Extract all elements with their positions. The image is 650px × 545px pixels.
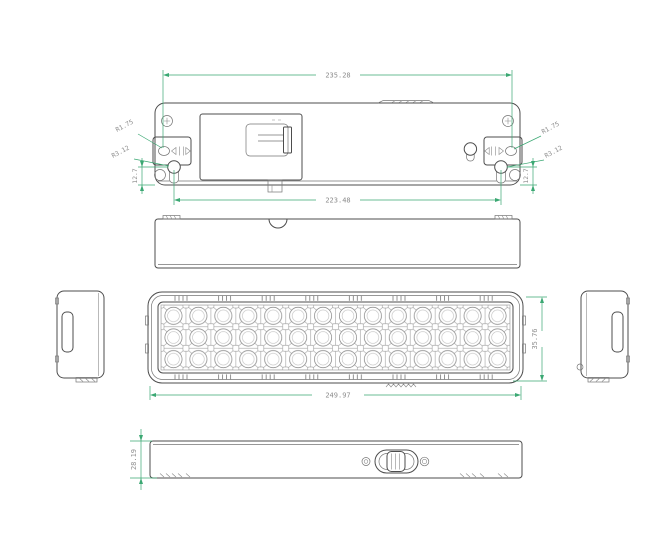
dim-label-right-keyhole-radius: R3.12 bbox=[544, 145, 564, 160]
bottom-outline bbox=[150, 441, 522, 478]
test-button bbox=[420, 457, 429, 466]
hanging-keyhole bbox=[464, 143, 476, 161]
left-end-cap-view bbox=[56, 291, 105, 382]
dim-label-right-keyhole-offset: 12.7 bbox=[523, 168, 530, 183]
right-mounting-fittings bbox=[484, 116, 522, 184]
end-cap-outline bbox=[57, 291, 104, 378]
left-mounting-fittings bbox=[153, 116, 191, 184]
dim-label-bottom-height: 28.19 bbox=[130, 449, 138, 470]
dim-label-front-width: 249.97 bbox=[325, 392, 350, 400]
dim-label-back-overall-width: 235.28 bbox=[325, 72, 350, 80]
bottom-view: 28.19 bbox=[130, 429, 522, 490]
cable-notch bbox=[269, 219, 287, 228]
dim-label-back-mounting-span: 223.48 bbox=[325, 197, 350, 205]
lens-grid bbox=[161, 305, 510, 370]
back-housing-outline bbox=[155, 103, 520, 185]
dim-label-left-keyhole-radius: R3.12 bbox=[111, 145, 131, 160]
dim-front-height: 35.76 bbox=[513, 297, 547, 381]
bracket-slot bbox=[62, 312, 73, 352]
back-view: 235.28 223.48 R1.75 R3.12 R1.75 R3.12 bbox=[111, 70, 564, 205]
dim-back-overall-width: 235.28 bbox=[163, 70, 512, 148]
foot-hatch-left bbox=[160, 474, 190, 478]
cable-tab bbox=[268, 180, 282, 192]
front-view: 249.97 35.76 bbox=[146, 292, 548, 400]
right-end-cap-view bbox=[581, 291, 630, 382]
bottom-edge-serration bbox=[386, 384, 416, 387]
dim-label-left-keyhole-offset: 12.7 bbox=[132, 168, 139, 183]
dim-back-mounting-span: 223.48 bbox=[174, 170, 501, 205]
technical-drawing-canvas: 235.28 223.48 R1.75 R3.12 R1.75 R3.12 bbox=[0, 0, 650, 545]
dim-label-left-slot-radius: R1.75 bbox=[115, 119, 135, 134]
dim-left-keyhole-offset: 12.7 bbox=[132, 158, 168, 194]
dim-label-right-slot-radius: R1.75 bbox=[541, 121, 561, 136]
power-switch bbox=[362, 450, 429, 473]
switch-slider bbox=[387, 452, 405, 472]
dim-label-front-height: 35.76 bbox=[531, 328, 539, 349]
side-elevation-view bbox=[155, 216, 520, 269]
corner-hole bbox=[155, 170, 166, 181]
vent-slots-bottom bbox=[172, 374, 500, 379]
dim-front-width: 249.97 bbox=[150, 386, 521, 400]
side-switch-bump bbox=[577, 364, 583, 370]
vent-slots-top bbox=[172, 296, 500, 301]
foot-hatch-right bbox=[460, 474, 508, 478]
end-tab-left bbox=[163, 216, 180, 220]
dim-bottom-height: 28.19 bbox=[130, 429, 157, 490]
battery-compartment bbox=[200, 114, 302, 192]
indicator-led-left bbox=[362, 458, 370, 466]
drawing-sheet: 235.28 223.48 R1.75 R3.12 R1.75 R3.12 bbox=[0, 0, 650, 545]
side-elevation-outline bbox=[155, 219, 520, 268]
battery-connector bbox=[246, 120, 292, 156]
end-tab-right bbox=[495, 216, 512, 220]
radius-callout-right-slot: R1.75 bbox=[514, 121, 561, 149]
